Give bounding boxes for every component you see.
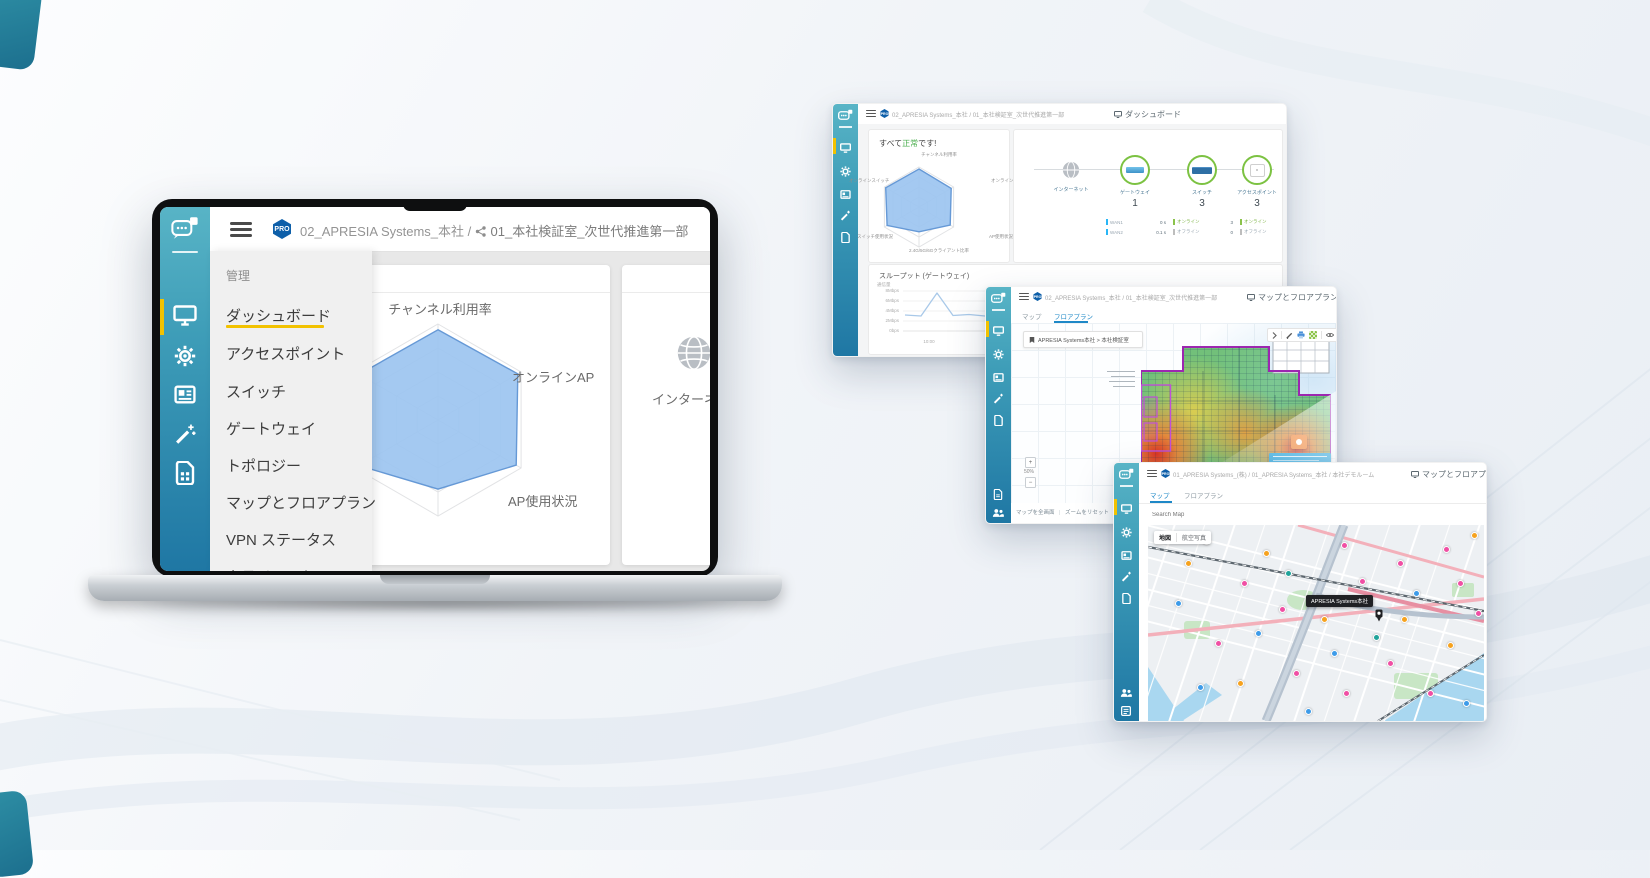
internet-globe-icon — [676, 335, 710, 376]
monitor-icon[interactable] — [1121, 501, 1132, 519]
menu-item-clients[interactable]: クライアント — [226, 566, 315, 571]
breadcrumb-separator: / — [468, 224, 472, 239]
map-poi-marker[interactable] — [1387, 660, 1394, 667]
tab-map[interactable]: マップ — [1150, 490, 1170, 500]
app-logo-icon[interactable] — [171, 216, 199, 245]
map-poi-marker[interactable] — [1359, 578, 1366, 585]
annotation-line — [1107, 371, 1135, 372]
stat-bar — [1173, 219, 1175, 225]
annotation-line — [1111, 376, 1135, 377]
status-ok-text: 正常 — [902, 139, 918, 148]
map-markers-layer — [1148, 525, 1484, 721]
map-type-control: 地図 航空写真 — [1154, 531, 1211, 544]
active-indicator — [833, 138, 836, 154]
switch-stat-row: オンライン 3 — [1173, 218, 1233, 226]
menu-item-gateways[interactable]: ゲートウェイ — [226, 418, 316, 439]
tab-bar: マップ フロアプラン — [1139, 485, 1486, 504]
access-point-stat-row: オンライン 3 — [1240, 218, 1283, 226]
switch-node[interactable] — [1187, 155, 1217, 185]
map-poi-marker[interactable] — [1475, 610, 1482, 617]
news-card-icon[interactable] — [1121, 547, 1132, 565]
sidebar-divider — [1120, 485, 1133, 487]
menu-item-dashboard[interactable]: ダッシュボード — [226, 305, 331, 326]
map-poi-marker[interactable] — [1343, 690, 1350, 697]
breadcrumb[interactable]: 02_APRESIA Systems_本社 / 01_本社検証室_次世代推進第一… — [892, 110, 1064, 119]
gateway-device-image — [1126, 167, 1144, 173]
breadcrumb[interactable]: 01_APRESIA Systems_(株) / 01_APRESIA Syst… — [1173, 470, 1374, 479]
breadcrumb-site[interactable]: 01_本社検証室_次世代推進第一部 — [1126, 296, 1217, 302]
menu-item-switches[interactable]: スイッチ — [226, 381, 286, 402]
news-card-icon[interactable] — [993, 369, 1004, 387]
breadcrumb[interactable]: 02_APRESIA Systems_本社 / 01_本社検証室_次世代推進第一… — [300, 221, 688, 240]
monitor-icon — [1247, 294, 1255, 301]
ytick: 8Mbps — [873, 288, 899, 293]
map-poi-marker[interactable] — [1373, 634, 1380, 641]
breadcrumb-org[interactable]: 02_APRESIA Systems_本社 — [892, 113, 968, 119]
page-title: マップとフロアプラン — [1247, 292, 1337, 303]
window-sidebar — [833, 104, 858, 356]
radar-axis-bottom-right-label: AP使用状況 — [508, 491, 577, 510]
internet-label: インターネット — [652, 389, 710, 408]
map-poi-marker[interactable] — [1457, 580, 1464, 587]
magic-wand-icon[interactable] — [1121, 569, 1132, 587]
monitor-icon — [1411, 471, 1419, 478]
access-point-node[interactable] — [1242, 155, 1272, 185]
topology-card: インターネット — [622, 265, 710, 565]
map-poi-marker[interactable] — [1397, 560, 1404, 567]
page-title: ダッシュボード — [1114, 109, 1181, 120]
tab-bar: マップ フロアプラン — [1011, 307, 1336, 324]
monitor-icon[interactable] — [840, 140, 851, 158]
switch-device-image — [1192, 167, 1212, 174]
breadcrumb-separator: / — [969, 113, 971, 119]
active-indicator — [1114, 499, 1117, 515]
sim-card-icon[interactable] — [175, 461, 195, 490]
window-header: PRO 02_APRESIA Systems_本社 / 01_本社検証室_次世代… — [1011, 287, 1336, 308]
bookmark-icon — [1029, 336, 1035, 344]
gateway-label: ゲートウェイ — [1105, 189, 1165, 196]
laptop-nav-drawer: 管理 ダッシュボード アクセスポイント スイッチ ゲートウェイ トポロジー マッ… — [210, 251, 372, 571]
map-poi-marker[interactable] — [1427, 690, 1434, 697]
menu-item-maps-floorplans[interactable]: マップとフロアプラン — [226, 492, 376, 513]
radar-axis-bottom: 2.4G/5G/6Gクライアント比率 — [869, 248, 1009, 254]
gear-icon[interactable] — [174, 345, 196, 372]
map-poi-marker[interactable] — [1341, 542, 1348, 549]
list-icon[interactable] — [1121, 703, 1131, 721]
menu-section-label: 管理 — [226, 267, 250, 284]
map-poi-marker[interactable] — [1215, 640, 1222, 647]
printer-icon[interactable] — [1297, 331, 1305, 339]
fullscreen-map-link[interactable]: マップを全画面 — [1016, 510, 1055, 516]
reset-zoom-link[interactable]: ズームをリセット — [1065, 510, 1109, 516]
users-icon[interactable] — [1120, 685, 1132, 703]
access-point-count: 3 — [1227, 198, 1283, 209]
canvas-footer: マップを全画面 | ズームをリセット — [1016, 508, 1109, 516]
pro-badge: PRO — [1161, 469, 1170, 478]
gear-icon[interactable] — [993, 347, 1004, 365]
menu-item-vpn-status[interactable]: VPN ステータス — [226, 529, 336, 550]
radar-axis-right-label: オンラインAP — [512, 367, 594, 386]
internet-label: インターネット — [1051, 186, 1091, 193]
pro-badge: PRO — [880, 109, 889, 118]
stat-bar — [1173, 229, 1175, 235]
breadcrumb[interactable]: 02_APRESIA Systems_本社 / 01_本社検証室_次世代推進第一… — [1045, 293, 1217, 302]
magic-wand-icon[interactable] — [840, 208, 851, 226]
pro-badge: PRO — [1033, 292, 1042, 301]
search-map-input[interactable] — [1150, 507, 1264, 522]
radar-axis-left: オンラインスイッチ — [849, 178, 889, 184]
switch-label: スイッチ — [1172, 189, 1232, 196]
document-icon[interactable] — [994, 413, 1003, 431]
map-poi-marker[interactable] — [1463, 700, 1470, 707]
laptop-base-notch — [380, 575, 490, 584]
status-message: すべて正常です! — [879, 138, 936, 149]
zoom-out-button[interactable]: − — [1025, 477, 1036, 488]
radar-axis-bottom-right: AP使用状況 — [989, 234, 1013, 240]
pro-badge: PRO — [272, 219, 292, 239]
active-tab-underline — [1150, 501, 1172, 503]
stat-bar — [1106, 229, 1108, 235]
menu-item-access-points[interactable]: アクセスポイント — [226, 343, 345, 364]
ytick: 0bps — [873, 328, 899, 333]
breadcrumb-org[interactable]: 02_APRESIA Systems_本社 — [300, 224, 464, 239]
laptop-screen: PRO 02_APRESIA Systems_本社 / 01_本社検証室_次世代… — [160, 207, 710, 571]
breadcrumb-site[interactable]: 01_本社検証室_次世代推進第一部 — [973, 113, 1064, 119]
gear-icon[interactable] — [1121, 525, 1132, 543]
monitor-icon[interactable] — [993, 323, 1004, 341]
sidebar-divider — [839, 126, 852, 128]
window-header: PRO 02_APRESIA Systems_本社 / 01_本社検証室_次世代… — [858, 104, 1286, 125]
internet-globe-icon — [1062, 161, 1080, 184]
heatmap-grid-icon[interactable] — [1309, 331, 1317, 339]
window-sidebar — [986, 287, 1011, 523]
magic-wand-icon[interactable] — [993, 391, 1004, 409]
monitor-icon[interactable] — [173, 305, 197, 331]
access-point-label: アクセスポイント — [1227, 189, 1283, 196]
hq-map-marker[interactable] — [1374, 609, 1384, 627]
app-logo-icon[interactable] — [1119, 468, 1134, 486]
app-logo-icon[interactable] — [991, 292, 1006, 310]
hamburger-menu-icon[interactable] — [230, 222, 252, 237]
document-icon[interactable] — [1122, 591, 1131, 609]
page-title: マップとフロアプラン — [1411, 469, 1487, 480]
annotation-line — [1113, 386, 1135, 387]
map-type-map-button[interactable]: 地図 — [1154, 533, 1176, 542]
active-menu-underline — [226, 325, 324, 328]
map-window: PRO 01_APRESIA Systems_(株) / 01_APRESIA … — [1113, 462, 1487, 722]
ytick: 2Mbps — [873, 318, 899, 323]
radar-axis-bottom-left: スイッチ使用状況 — [857, 234, 893, 240]
sidebar-divider — [992, 309, 1005, 311]
zoom-in-button[interactable]: + — [1025, 457, 1036, 468]
ap-device-image — [1250, 164, 1265, 177]
stat-bar — [1240, 229, 1242, 235]
throughput-title: スループット (ゲートウェイ) — [879, 271, 969, 281]
news-card-icon[interactable] — [840, 186, 851, 204]
map-poi-marker[interactable] — [1237, 680, 1244, 687]
radar-axis-top: チャンネル利用率 — [869, 152, 1009, 158]
laptop-camera-notch — [403, 201, 467, 211]
card-divider — [622, 292, 710, 293]
window-sidebar — [1114, 463, 1139, 721]
breadcrumb-site[interactable]: 01_本社検証室_次世代推進第一部 — [491, 224, 689, 239]
radar-axis-top-label: チャンネル利用率 — [360, 299, 520, 318]
ytick: 6Mbps — [873, 298, 899, 303]
zoom-level: 50% — [1024, 469, 1034, 475]
map-poi-marker[interactable] — [1255, 630, 1262, 637]
gateway-stat-row: WAN2 0.1 s — [1106, 228, 1166, 236]
map-poi-marker[interactable] — [1331, 650, 1338, 657]
monitor-icon — [1114, 111, 1122, 118]
tab-floorplan[interactable]: フロアプラン — [1184, 490, 1223, 500]
stat-bar — [1240, 219, 1242, 225]
map-poi-marker[interactable] — [1263, 550, 1270, 557]
active-indicator — [986, 321, 989, 337]
menu-item-topology[interactable]: トポロジー — [226, 455, 301, 476]
gateway-count: 1 — [1105, 198, 1165, 209]
laptop-header: PRO 02_APRESIA Systems_本社 / 01_本社検証室_次世代… — [210, 207, 710, 252]
app-logo-icon[interactable] — [838, 109, 853, 127]
map-poi-marker[interactable] — [1305, 708, 1312, 715]
floorplan-selector-dropdown[interactable]: APRESIA Systems本社 > 本社検証室 — [1023, 331, 1143, 348]
ytick: 4Mbps — [873, 308, 899, 313]
window-header: PRO 01_APRESIA Systems_(株) / 01_APRESIA … — [1139, 463, 1486, 486]
topology-card: インターネット ゲートウェイ 1 WAN1 0 s WAN2 0.1 s スイッ… — [1013, 129, 1283, 263]
map-poi-marker[interactable] — [1321, 616, 1328, 623]
laptop-sidebar — [160, 207, 210, 571]
map-poi-marker[interactable] — [1241, 580, 1248, 587]
radar-card: チャンネル利用率 オンラインAP AP使用状況 — [360, 265, 610, 565]
breadcrumb-separator: / — [1122, 296, 1124, 302]
sidebar-divider — [172, 251, 198, 253]
map-poi-marker[interactable] — [1285, 570, 1292, 577]
map-poi-marker[interactable] — [1185, 560, 1192, 567]
tab-map[interactable]: マップ — [1022, 311, 1042, 321]
location-tooltip: APRESIA Systems本社 — [1306, 595, 1373, 607]
map-poi-marker[interactable] — [1293, 670, 1300, 677]
breadcrumb-org[interactable]: 02_APRESIA Systems_本社 — [1045, 296, 1121, 302]
eye-icon[interactable] — [1326, 332, 1334, 338]
document-icon[interactable] — [841, 230, 850, 248]
gateway-node[interactable] — [1120, 155, 1150, 185]
map-poi-marker[interactable] — [1443, 546, 1450, 553]
hamburger-menu-icon[interactable] — [1147, 470, 1157, 477]
news-card-icon[interactable] — [174, 385, 196, 409]
map-poi-marker[interactable] — [1471, 532, 1478, 539]
chevron-right-icon[interactable] — [1272, 332, 1277, 339]
switch-stat-row: オフライン 0 — [1173, 228, 1233, 236]
map-poi-marker[interactable] — [1197, 684, 1204, 691]
hamburger-menu-icon[interactable] — [866, 110, 876, 117]
annotation-line — [1109, 381, 1135, 382]
map-poi-marker[interactable] — [1413, 590, 1420, 597]
hamburger-menu-icon[interactable] — [1019, 293, 1029, 300]
file-report-icon[interactable] — [993, 487, 1003, 505]
pencil-icon[interactable] — [1286, 332, 1293, 339]
xtick: 10:00 — [909, 339, 949, 344]
magic-wand-icon[interactable] — [174, 423, 196, 450]
gateway-stat-row: WAN1 0 s — [1106, 218, 1166, 226]
access-point-stat-row: オフライン 0 — [1240, 228, 1283, 236]
active-indicator — [160, 299, 164, 335]
stat-bar — [1106, 219, 1108, 225]
status-card: すべて正常です! チャンネル利用率 オンラインスイッチ オンラインAP スイッチ… — [868, 129, 1010, 263]
map-view[interactable]: 地図 航空写真 APRESIA Systems本社 — [1148, 525, 1484, 721]
floorplan-toolbar — [1267, 328, 1336, 342]
site-share-icon — [475, 226, 487, 237]
selector-label: APRESIA Systems本社 > 本社検証室 — [1038, 336, 1129, 344]
users-icon[interactable] — [992, 505, 1004, 523]
map-poi-marker[interactable] — [1175, 600, 1182, 607]
tab-floorplan[interactable]: フロアプラン — [1054, 311, 1093, 321]
switch-count: 3 — [1172, 198, 1232, 209]
map-poi-marker[interactable] — [1401, 616, 1408, 623]
map-poi-marker[interactable] — [1447, 642, 1454, 649]
map-poi-marker[interactable] — [1279, 606, 1286, 613]
map-type-satellite-button[interactable]: 航空写真 — [1177, 533, 1211, 542]
card-divider — [360, 292, 610, 293]
